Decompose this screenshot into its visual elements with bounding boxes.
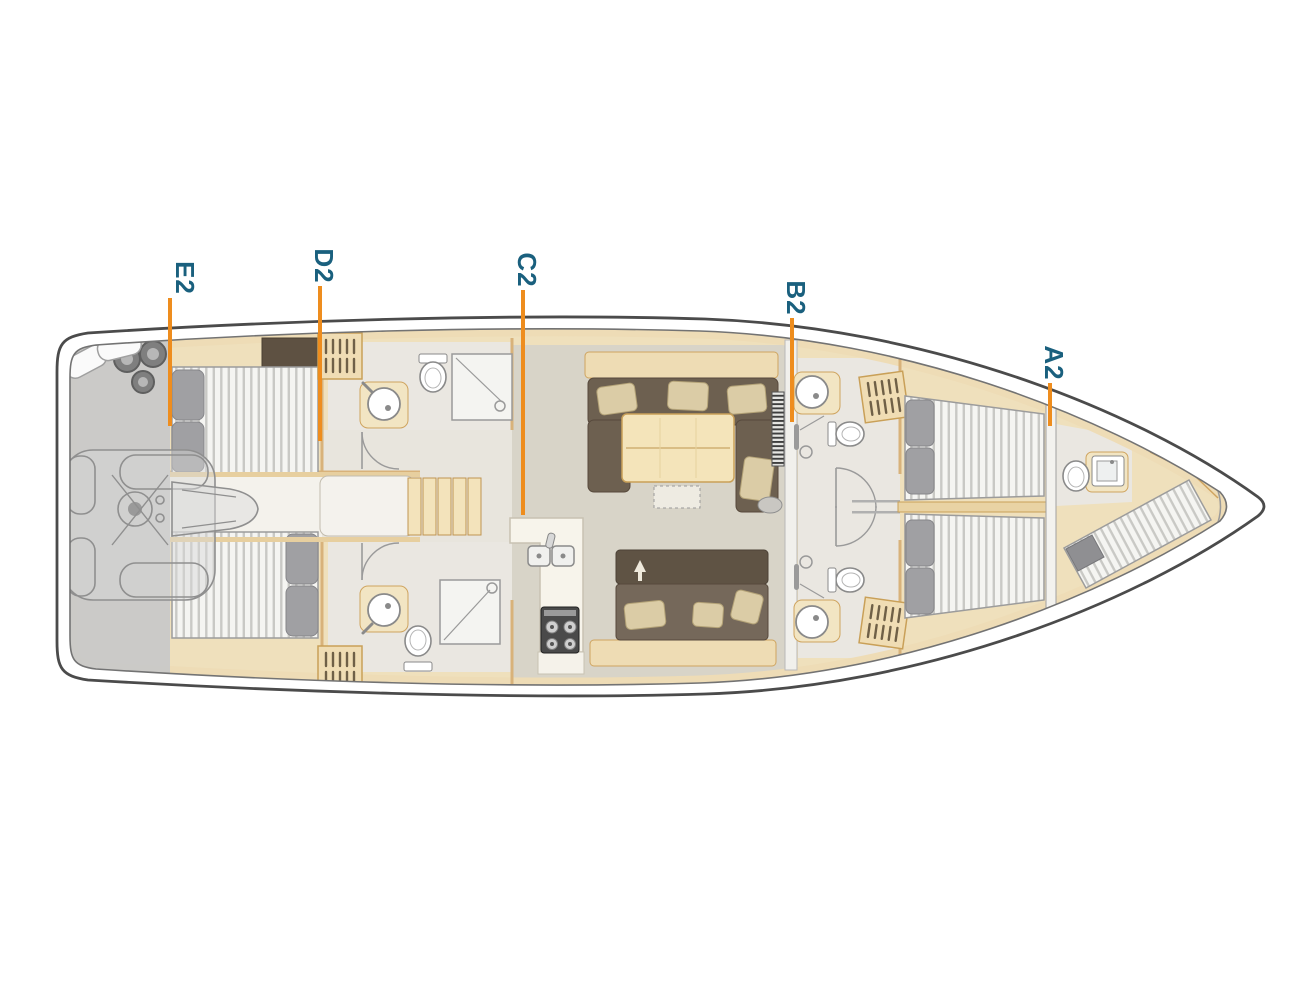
pillow [727,383,767,414]
sink-bowl [1097,461,1117,481]
cabin-label-d2-text: D2 [304,246,344,286]
shower-rail [794,564,799,590]
cabin-label-c2-line [521,290,525,515]
yacht-deck-plan-drawing [0,0,1313,984]
cabin-label-d2: D2 [300,246,340,441]
bulkhead-a2 [1046,402,1056,610]
cabin-label-a2: A2 [1030,343,1070,426]
sink [368,594,400,626]
cabin-label-b2-line [790,318,794,422]
yacht-deck-plan-figure: E2 D2 C2 B2 A2 [0,0,1313,984]
pillow [624,600,666,630]
owner-cabin [898,396,1048,618]
cabin-label-e2-text: E2 [165,258,205,298]
pillow [739,456,775,502]
cabin-label-a2-text: A2 [1034,343,1074,383]
sink [796,606,828,638]
pillow [286,586,318,636]
toilet-tank [404,662,432,671]
floor-hatch [758,497,782,513]
louver-hatch [859,597,909,649]
galley-cabinet [538,652,584,674]
pillow [906,448,934,494]
pillow [692,602,724,628]
cabin-label-a2-line [1048,383,1052,426]
sideboard [590,640,776,666]
louver-hatch [859,371,909,423]
cabin-label-b2-text: B2 [776,278,816,318]
cabin-label-d2-line [318,286,322,441]
stool [654,486,700,508]
cabin-label-e2: E2 [150,258,190,426]
lamp-stem [638,572,642,581]
shower-rail [794,424,799,450]
toilet-tank [828,568,836,592]
stove [541,607,579,653]
pillow [906,400,934,446]
corridor-wall [852,511,900,514]
pillow [596,382,638,415]
cabin-label-b2: B2 [772,278,812,422]
companionway-stairs [408,478,481,535]
cabin-label-e2-line [168,298,172,426]
bed-divider [898,502,1048,512]
engine-box [320,476,414,536]
pillow [667,381,708,411]
pillow [906,520,934,566]
corridor-wall [852,500,900,503]
cabin-label-c2-text: C2 [507,250,547,290]
sideboard [585,352,778,378]
pillow [906,568,934,614]
toilet-tank [828,422,836,446]
cabin-label-c2: C2 [503,250,543,515]
